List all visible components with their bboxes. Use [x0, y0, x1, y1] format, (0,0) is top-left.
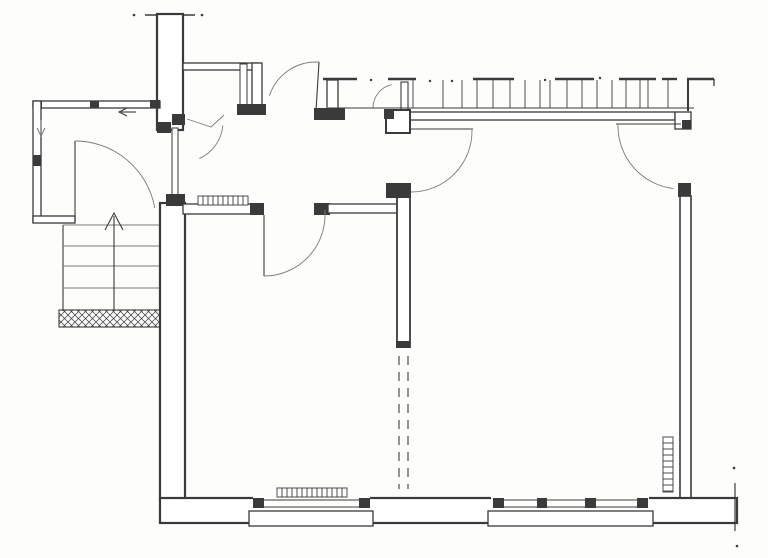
room-left-wall: [160, 203, 185, 500]
bigroom-corner-notch: [384, 109, 394, 119]
closet-door-pier: [237, 104, 266, 115]
bigroom-east-pier: [678, 183, 691, 197]
chimney-wall: [157, 14, 183, 130]
pergola-posts: [413, 80, 668, 108]
balcony-pier-base: [314, 108, 345, 120]
hall-door1-swing: [264, 210, 325, 276]
window-left-sill: [249, 511, 373, 526]
bigroom-west-wall-endcap: [396, 341, 410, 348]
closet-right-wall: [252, 63, 262, 110]
porch-hall-jamb-bottom: [166, 194, 185, 206]
topwall-east-jog-block: [682, 120, 691, 129]
stair-treads: [63, 225, 159, 288]
porch-top-post: [90, 101, 99, 108]
bigroom-west-pier: [386, 183, 411, 198]
window-left-jamb-east: [359, 498, 370, 508]
porch-top-post-east: [150, 100, 160, 108]
window-right-mullion-a: [537, 498, 547, 508]
porch-hall-door-swing: [199, 125, 223, 158]
balcony-door-swing: [373, 85, 392, 108]
window-right-jamb-west: [493, 498, 504, 508]
closet-door-panel: [240, 64, 247, 108]
porch-door-swing: [75, 141, 155, 208]
window-right-mullion-b: [585, 498, 596, 508]
bigroom-top-wall: [408, 112, 675, 120]
hall-radiator: [198, 196, 248, 205]
hall-south-wall-east: [328, 204, 397, 213]
window-right-jamb-east: [637, 498, 648, 508]
porch-hall-jamb-top-b: [172, 114, 185, 125]
window-left-radiator: [277, 488, 347, 497]
balcony-door-jamb-post: [401, 82, 408, 110]
rightwall-door-swing: [618, 125, 673, 189]
hall-door1-jamb-west: [250, 203, 264, 215]
window-left-jamb-west: [253, 498, 264, 508]
bigroom-door-swing: [411, 130, 472, 192]
bigroom-west-wall: [397, 196, 410, 347]
floor-plan-page: [0, 0, 768, 558]
bigroom-radiator: [663, 437, 673, 492]
floor-plan-drawing: [0, 0, 768, 558]
closet-hook-mark: [187, 115, 224, 127]
porch-bottom-wall: [33, 216, 75, 223]
hall-door2-swing: [269, 62, 319, 96]
hall-south-wall-west: [183, 204, 255, 214]
bigroom-east-wall: [680, 196, 691, 500]
porch-hall-jamb-top-a: [157, 122, 171, 133]
balcony-pier: [327, 80, 338, 110]
window-right-sill: [488, 511, 653, 526]
porch-left-post: [33, 155, 41, 166]
porch-hall-door-panel: [172, 128, 178, 198]
hall-door2-leaf: [316, 62, 319, 111]
